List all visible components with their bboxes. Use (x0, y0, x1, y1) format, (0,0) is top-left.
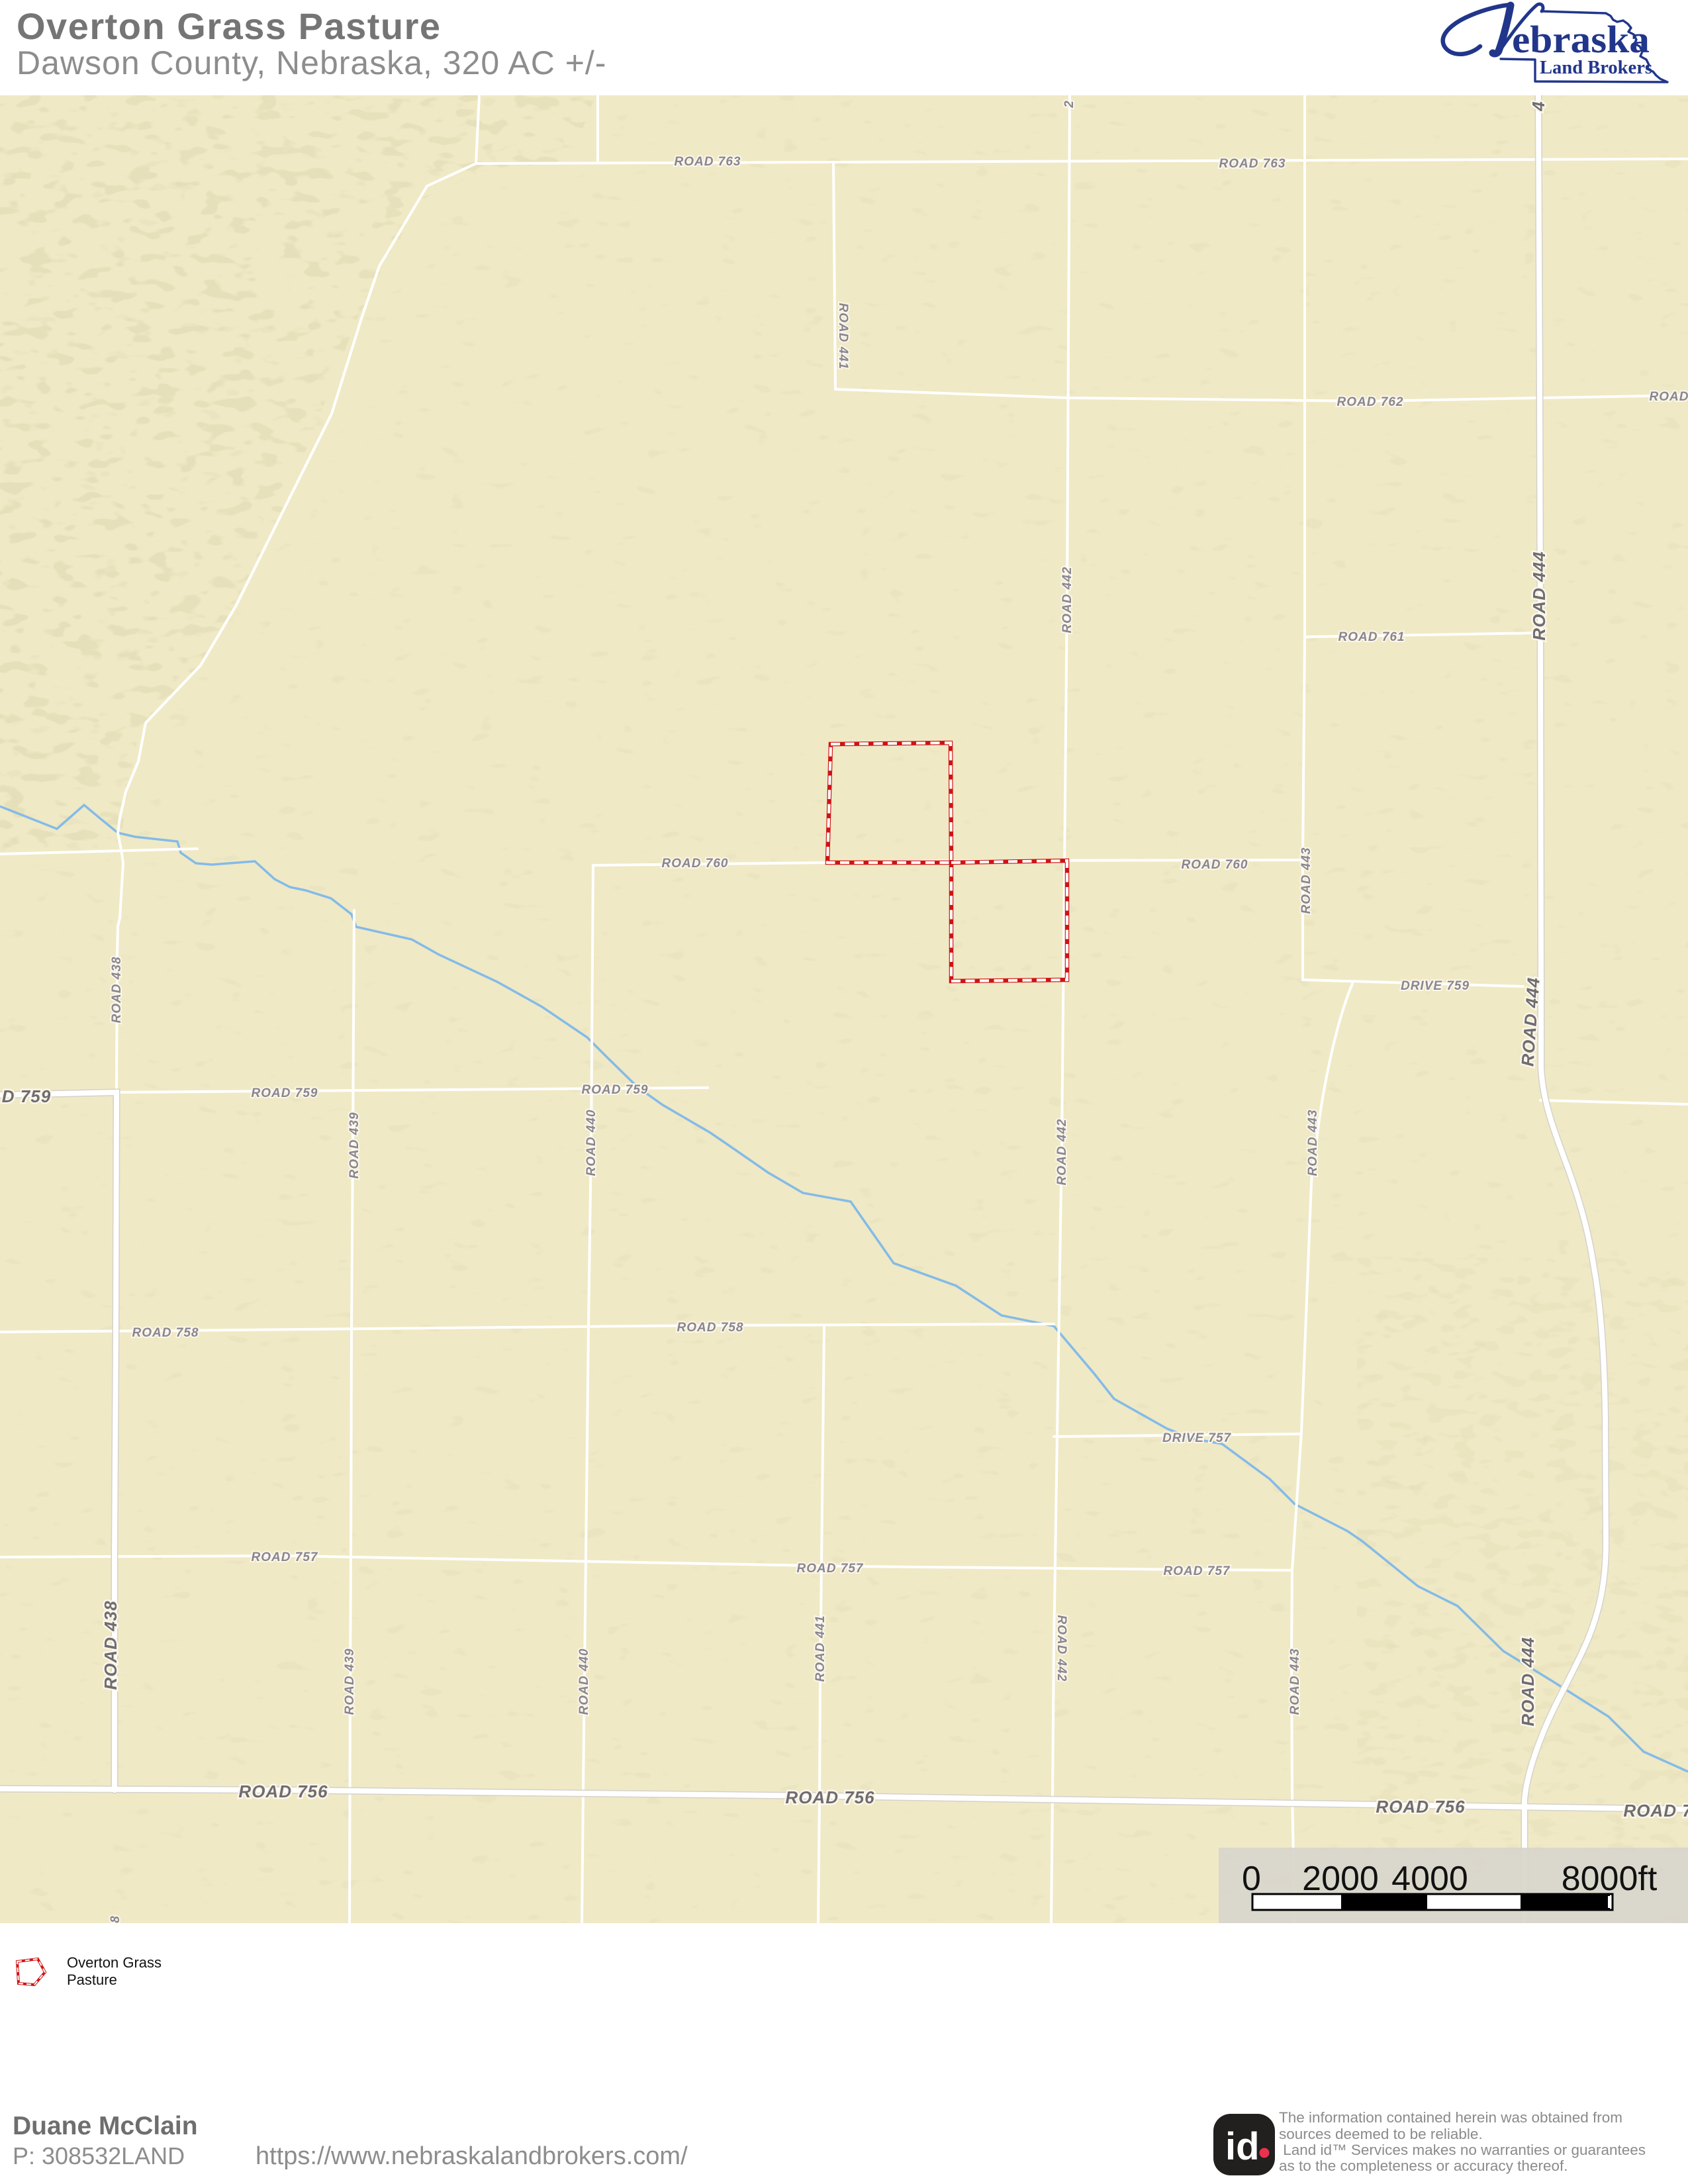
svg-text:ROAD 438: ROAD 438 (110, 957, 124, 1023)
svg-text:ROAD 756: ROAD 756 (1623, 1801, 1688, 1821)
svg-text:ROAD 443: ROAD 443 (1288, 1648, 1302, 1715)
svg-text:ROAD 440: ROAD 440 (577, 1648, 591, 1715)
svg-text:ROAD 762: ROAD 762 (1650, 390, 1688, 404)
svg-text:ROAD 439: ROAD 439 (343, 1648, 357, 1715)
svg-text:DRIVE 759: DRIVE 759 (1401, 979, 1470, 993)
svg-text:ROAD 763: ROAD 763 (1219, 157, 1286, 171)
svg-text:ROAD 442: ROAD 442 (1055, 1119, 1069, 1186)
svg-text:Dawson County, Nebraska, 320 A: Dawson County, Nebraska, 320 AC +/- (17, 44, 606, 81)
svg-text:id: id (1225, 2125, 1260, 2168)
svg-text:8000ft: 8000ft (1562, 1860, 1658, 1898)
svg-text:Pasture: Pasture (67, 1971, 117, 1988)
svg-text:0: 0 (1242, 1860, 1261, 1898)
svg-text:ROAD 442: ROAD 442 (1055, 1615, 1068, 1682)
svg-text:ROAD 757: ROAD 757 (1164, 1564, 1231, 1578)
svg-text:ROAD 440: ROAD 440 (585, 1110, 598, 1176)
svg-text:ROAD 441: ROAD 441 (836, 303, 850, 370)
svg-text:8: 8 (109, 1915, 122, 1923)
svg-text:2000: 2000 (1302, 1860, 1379, 1898)
svg-text:Land Brokers: Land Brokers (1540, 58, 1652, 78)
svg-text:ROAD 756: ROAD 756 (785, 1787, 874, 1807)
svg-text:ROAD 443: ROAD 443 (1299, 847, 1313, 914)
svg-text:Duane McClain: Duane McClain (13, 2112, 198, 2140)
svg-text:ROAD 756: ROAD 756 (238, 1781, 328, 1801)
svg-text:2: 2 (1062, 100, 1076, 109)
svg-text:https://www.nebraskalandbroker: https://www.nebraskalandbrokers.com/ (256, 2142, 688, 2170)
svg-text:ROAD 444: ROAD 444 (1529, 551, 1549, 640)
svg-text:as to the completeness or accu: as to the completeness or accuracy there… (1279, 2158, 1568, 2174)
svg-text:ebraska: ebraska (1512, 18, 1650, 61)
svg-text:Land id™ Services makes no war: Land id™ Services makes no warranties or… (1279, 2142, 1646, 2158)
svg-text:4000: 4000 (1391, 1860, 1468, 1898)
svg-text:ROAD 441: ROAD 441 (814, 1615, 827, 1682)
svg-text:ROAD 758: ROAD 758 (677, 1321, 744, 1335)
svg-text:ROAD 760: ROAD 760 (1182, 858, 1248, 872)
svg-text:The information contained here: The information contained herein was obt… (1279, 2109, 1622, 2126)
svg-text:ROAD 756: ROAD 756 (1376, 1797, 1465, 1817)
svg-text:ROAD 762: ROAD 762 (1337, 395, 1404, 409)
svg-text:ROAD 442: ROAD 442 (1060, 567, 1074, 634)
svg-text:sources deemed to be reliable.: sources deemed to be reliable. (1279, 2126, 1483, 2142)
svg-text:ROAD 438: ROAD 438 (101, 1600, 120, 1689)
svg-text:ROAD 439: ROAD 439 (348, 1112, 361, 1179)
svg-text:ROAD 444: ROAD 444 (1518, 1637, 1538, 1726)
svg-text:ROAD 757: ROAD 757 (797, 1562, 864, 1576)
svg-text:ROAD 759: ROAD 759 (252, 1086, 318, 1100)
svg-text:D 759: D 759 (2, 1086, 51, 1106)
svg-text:P: 308532LAND: P: 308532LAND (13, 2142, 185, 2169)
svg-text:ROAD 443: ROAD 443 (1306, 1110, 1320, 1176)
svg-text:Overton Grass Pasture: Overton Grass Pasture (17, 5, 442, 47)
svg-text:ROAD 757: ROAD 757 (252, 1550, 318, 1564)
svg-text:ROAD 760: ROAD 760 (662, 857, 729, 871)
svg-text:Overton Grass: Overton Grass (67, 1954, 162, 1971)
svg-text:DRIVE 757: DRIVE 757 (1162, 1431, 1231, 1445)
svg-text:ROAD 759: ROAD 759 (582, 1083, 649, 1097)
svg-text:ROAD 758: ROAD 758 (132, 1326, 199, 1340)
svg-text:ROAD 763: ROAD 763 (675, 155, 741, 169)
svg-text:ROAD 761: ROAD 761 (1338, 630, 1405, 644)
svg-text:4: 4 (1528, 101, 1548, 111)
